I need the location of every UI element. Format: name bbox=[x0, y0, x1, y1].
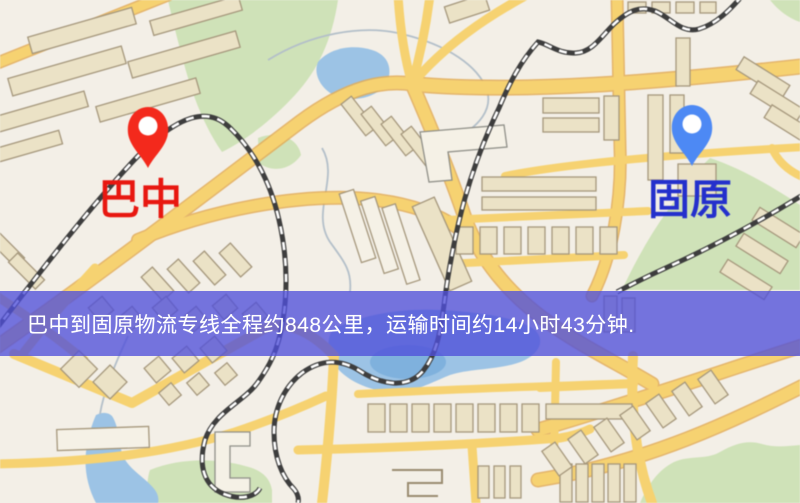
map-canvas: 巴中 固原 bbox=[0, 0, 800, 503]
map-screenshot: 巴中 固原 巴中到固原物流专线全程约848公里，运输时间约14小时43分钟. bbox=[0, 0, 800, 503]
origin-city-label: 巴中 bbox=[98, 176, 182, 223]
route-info-text: 巴中到固原物流专线全程约848公里，运输时间约14小时43分钟. bbox=[27, 309, 635, 339]
destination-city-label: 固原 bbox=[648, 176, 732, 223]
route-info-banner: 巴中到固原物流专线全程约848公里，运输时间约14小时43分钟. bbox=[0, 291, 800, 356]
